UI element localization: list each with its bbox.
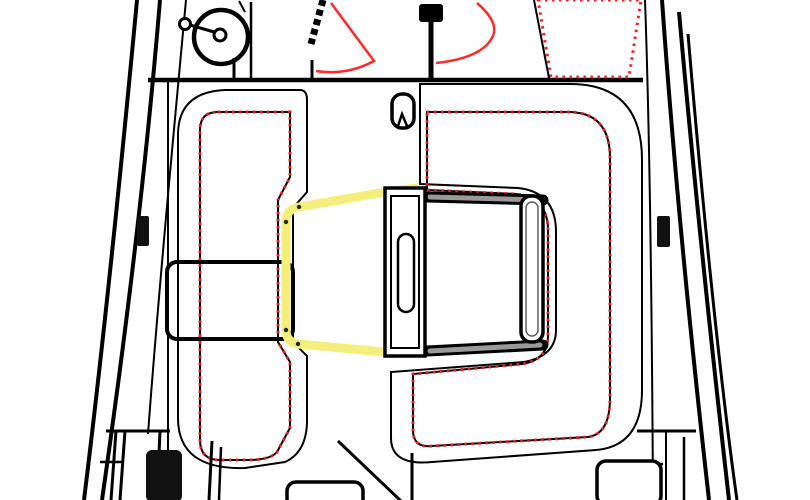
center-hatch [287, 482, 363, 500]
sheet-lead-fan-port [316, 3, 374, 72]
trim-fastener-dot [297, 205, 301, 209]
deck-plan-canvas [0, 0, 810, 500]
port-deck-cleat [137, 216, 149, 246]
port-mooring-cleat [239, 448, 304, 475]
port-locker-lid [167, 262, 293, 339]
port-seat-cushion [200, 112, 290, 460]
trim-fastener-dot [296, 342, 300, 346]
table-side-bar [521, 196, 543, 342]
stbd-seat-cushion [413, 112, 610, 446]
trim-fastener-dot [284, 328, 288, 332]
stbd-seat-base [391, 84, 642, 463]
deck-plan-svg [0, 0, 810, 500]
cabin-trunk-edge [534, 0, 549, 78]
port-pedestal [146, 450, 182, 500]
halyard-stack [311, 0, 323, 44]
table-padeye [392, 94, 414, 128]
companionway-post-a [209, 441, 212, 500]
winch-hub [214, 29, 226, 41]
port-stern-post-b [120, 431, 125, 500]
sidedeck-sunpad [538, 0, 641, 77]
deck-plan-elements [84, 0, 737, 500]
winch-handle-knob [180, 19, 191, 30]
stbd-hatch [597, 461, 661, 500]
companionway-post-b [219, 447, 221, 500]
winch-line-stub [239, 1, 245, 12]
trim-fastener-dot [284, 220, 288, 224]
stbd-deck-cleat [657, 216, 670, 247]
stbd-mooring-cleat [516, 470, 579, 500]
hull-stbd-outer [679, 12, 729, 500]
table-leaf-handle [398, 234, 414, 312]
hull-stbd-inner [645, 0, 653, 500]
sheet-lead-fan-stbd [436, 3, 494, 63]
